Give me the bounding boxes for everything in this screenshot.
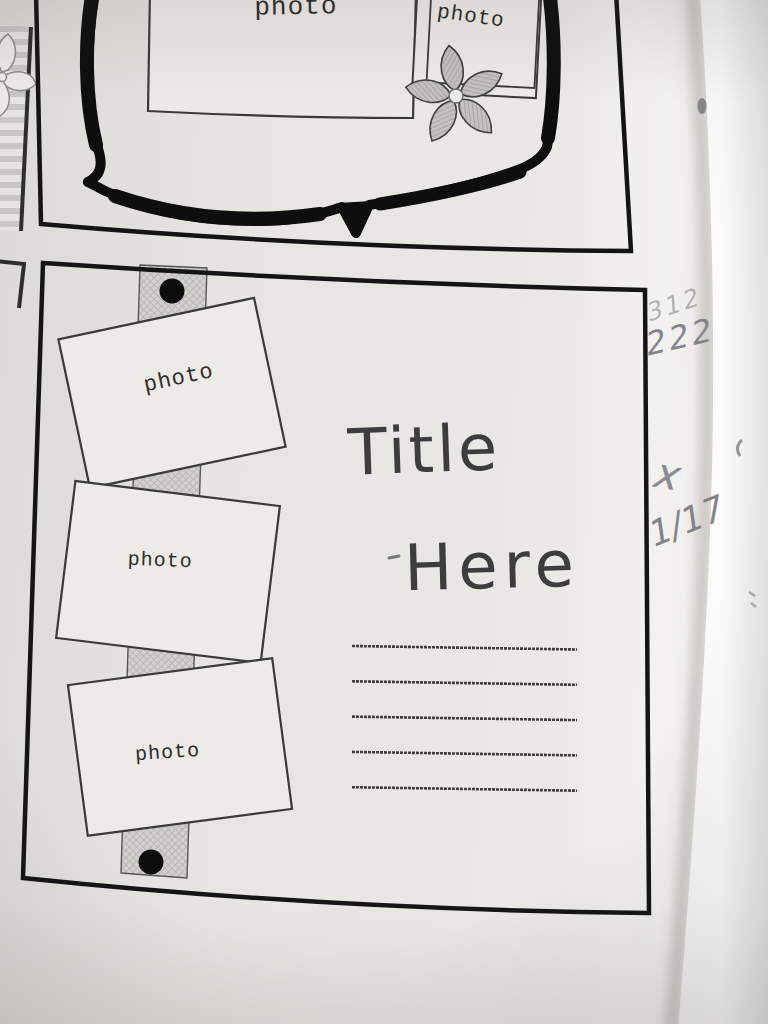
photo-2-label: photo	[127, 548, 193, 573]
stray-pencil-dash	[389, 556, 399, 558]
top-large-photo-label: photo	[254, 0, 338, 23]
title-line-2: Here	[403, 527, 581, 606]
photographed-book-page: photo photo photo	[0, 0, 768, 1024]
page-edge-speck	[698, 98, 707, 114]
brad-top	[160, 279, 185, 304]
top-large-photo: photo	[148, 0, 416, 118]
title-line-1: Title	[346, 410, 502, 489]
brad-bottom	[139, 850, 164, 875]
flower-center	[449, 89, 463, 103]
photo-3-label: photo	[134, 739, 200, 766]
